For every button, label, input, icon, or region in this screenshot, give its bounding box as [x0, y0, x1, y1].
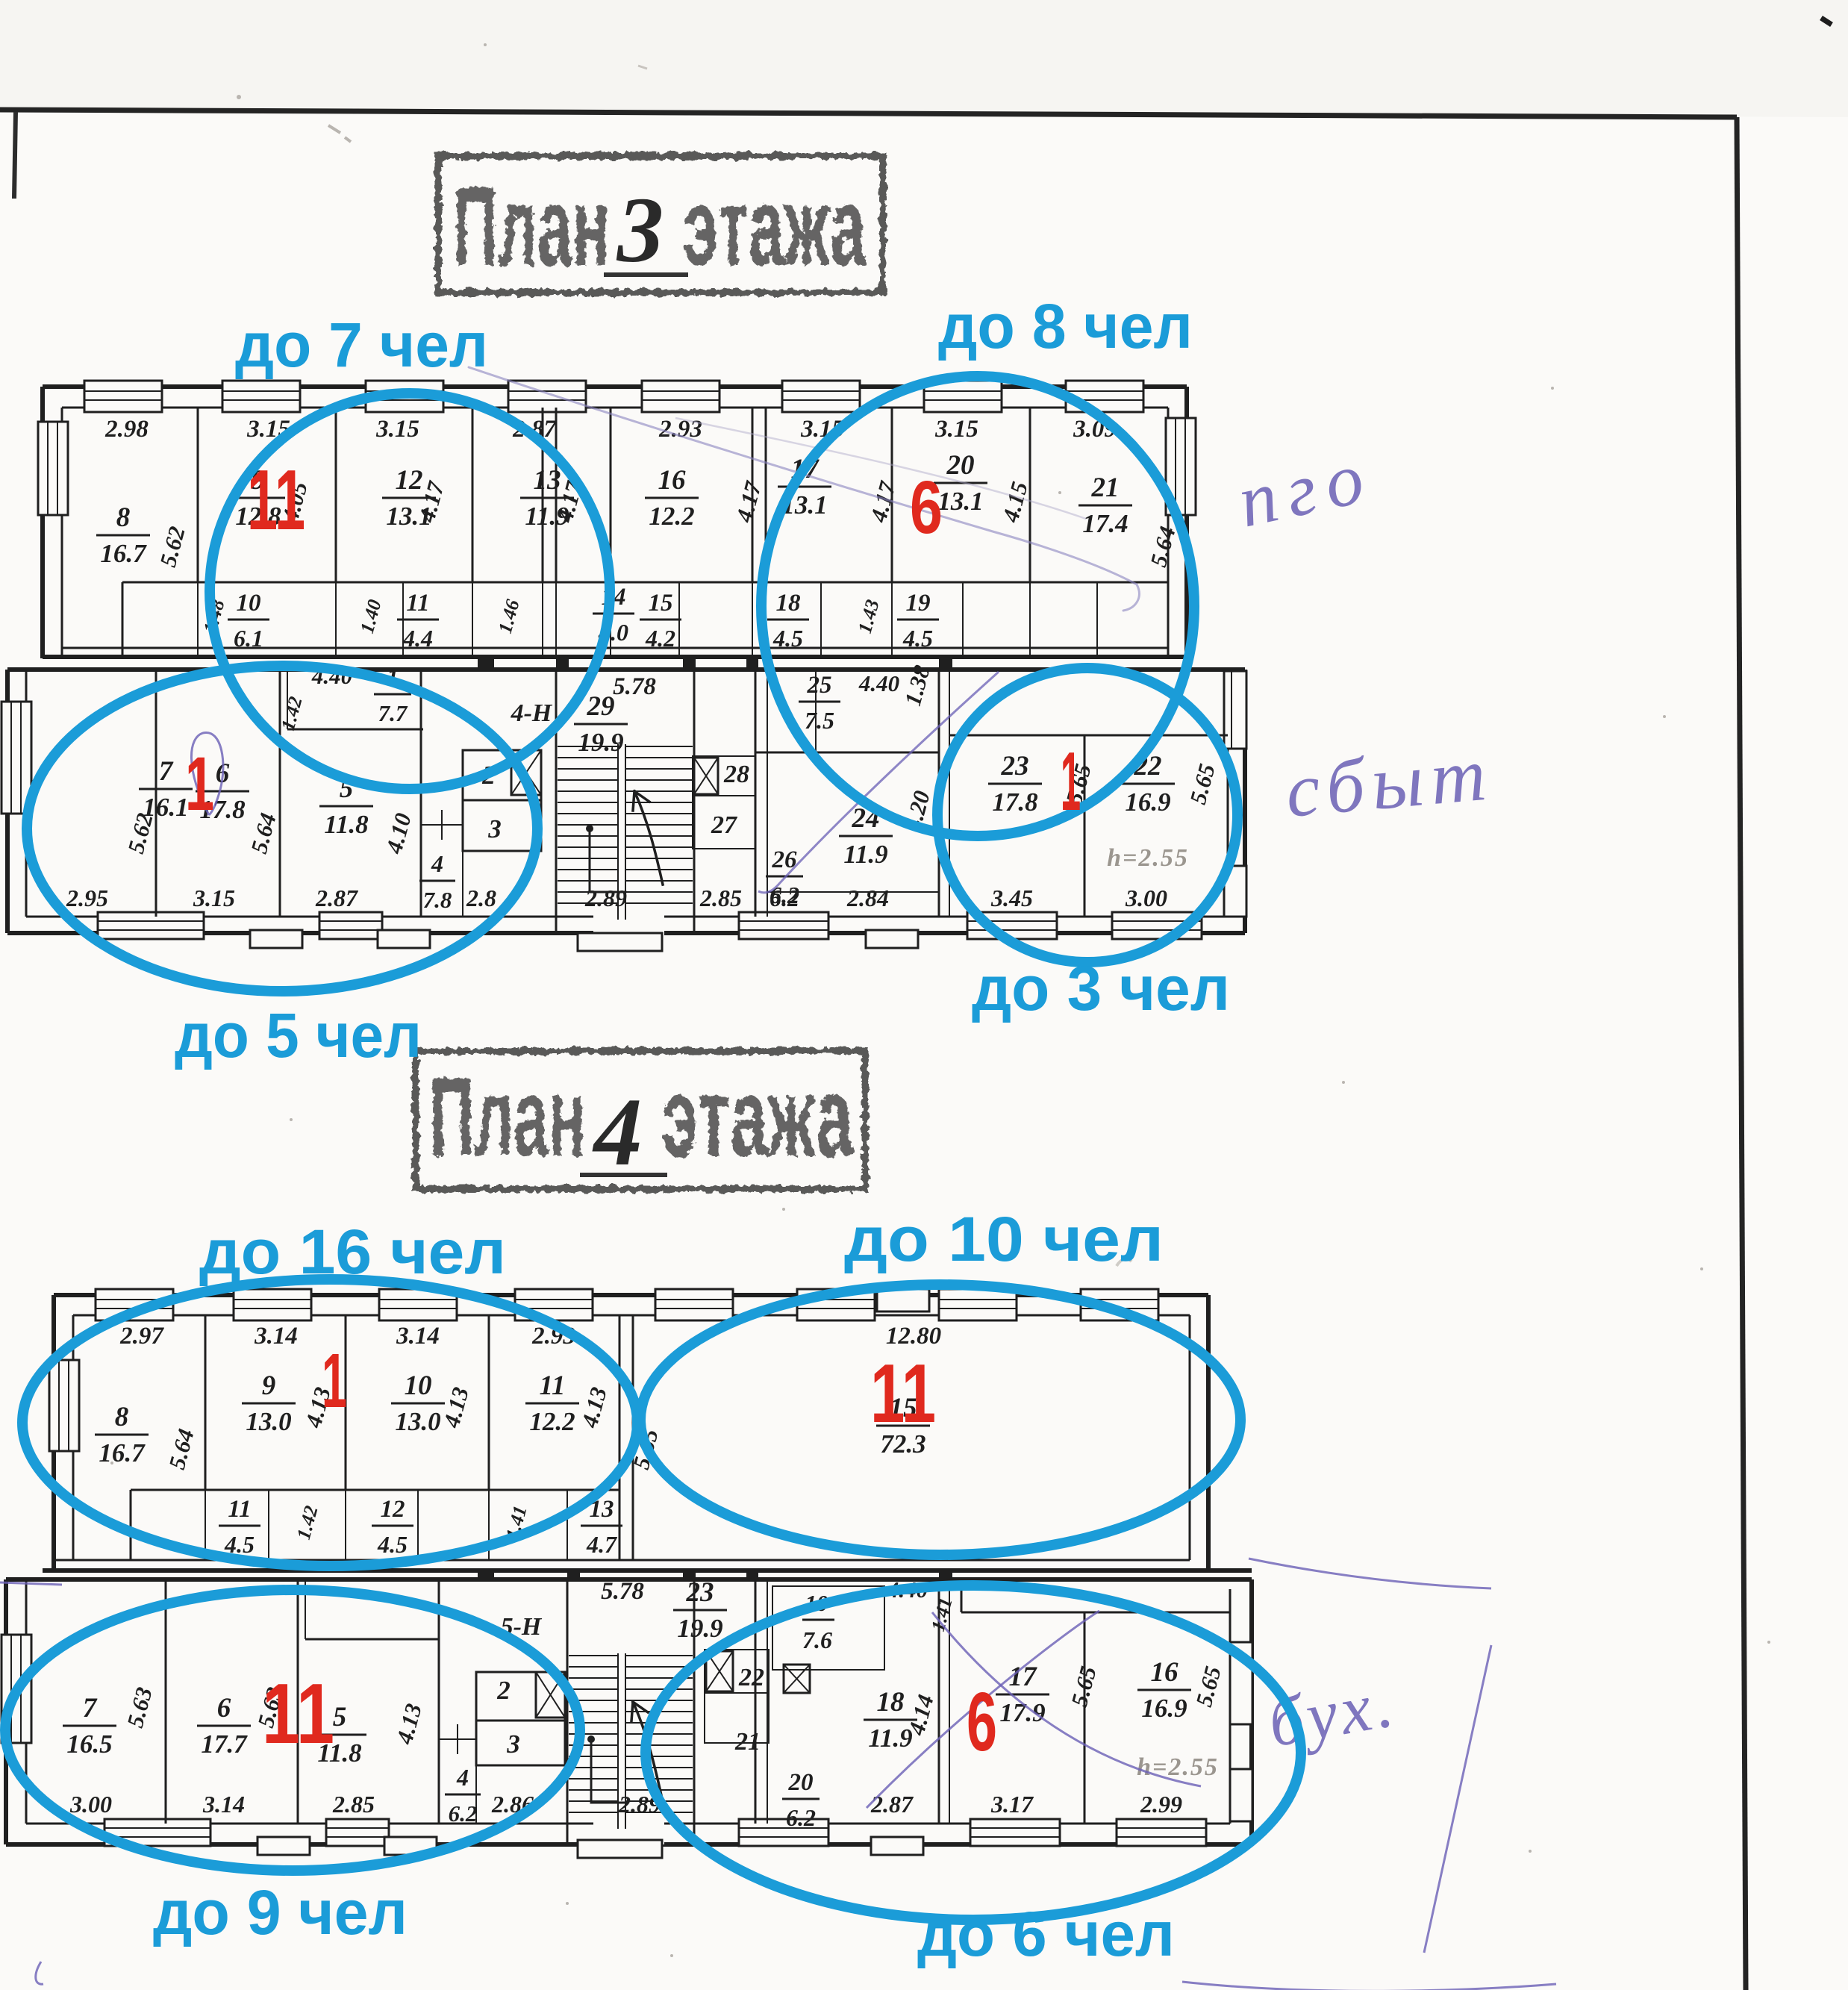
svg-text:6: 6: [967, 1676, 997, 1768]
svg-text:29: 29: [587, 691, 615, 722]
svg-text:11: 11: [406, 590, 429, 617]
svg-text:2.89: 2.89: [584, 885, 627, 911]
svg-text:12.2: 12.2: [529, 1407, 575, 1436]
svg-text:4: 4: [456, 1764, 469, 1791]
svg-text:3.14: 3.14: [396, 1323, 440, 1350]
svg-text:16: 16: [658, 465, 687, 496]
svg-text:до 7 чел: до 7 чел: [235, 310, 488, 380]
svg-text:3.00: 3.00: [69, 1791, 112, 1818]
svg-text:21: 21: [734, 1728, 761, 1756]
svg-text:сбыт: сбыт: [1282, 732, 1496, 834]
svg-text:4: 4: [431, 850, 443, 877]
svg-text:25: 25: [807, 672, 832, 699]
svg-text:5.78: 5.78: [613, 673, 656, 700]
svg-text:План: План: [453, 163, 610, 289]
svg-text:15: 15: [649, 590, 673, 617]
svg-text:2.95: 2.95: [66, 885, 108, 911]
svg-text:до 16 чел: до 16 чел: [199, 1217, 506, 1287]
svg-text:20: 20: [946, 450, 975, 481]
svg-text:16.9: 16.9: [1141, 1694, 1187, 1723]
svg-text:4.5: 4.5: [902, 625, 933, 652]
svg-text:16.7: 16.7: [100, 539, 147, 568]
svg-text:18: 18: [776, 590, 801, 617]
svg-text:8: 8: [115, 1402, 129, 1432]
svg-text:7: 7: [83, 1693, 98, 1724]
svg-text:1: 1: [185, 741, 214, 826]
svg-text:2.8: 2.8: [466, 885, 496, 911]
svg-text:6: 6: [217, 1693, 231, 1724]
svg-text:3.14: 3.14: [202, 1791, 245, 1818]
svg-text:12.80: 12.80: [886, 1323, 941, 1350]
svg-text:План: План: [429, 1054, 586, 1179]
svg-text:7.5: 7.5: [805, 707, 834, 734]
svg-text:11: 11: [228, 1496, 251, 1523]
svg-text:2.98: 2.98: [104, 416, 149, 443]
svg-text:4.40: 4.40: [858, 670, 899, 696]
svg-text:3: 3: [506, 1729, 520, 1759]
svg-text:12.2: 12.2: [649, 502, 694, 531]
svg-text:6.2: 6.2: [770, 882, 799, 908]
svg-text:до 3 чел: до 3 чел: [972, 953, 1230, 1023]
svg-text:2: 2: [496, 1676, 511, 1705]
svg-text:7: 7: [159, 756, 174, 787]
svg-text:5: 5: [333, 1702, 347, 1732]
svg-text:3: 3: [616, 179, 664, 282]
svg-text:3.17: 3.17: [990, 1791, 1034, 1818]
svg-text:28: 28: [723, 761, 749, 788]
svg-text:11: 11: [247, 453, 305, 548]
svg-text:22: 22: [738, 1664, 764, 1691]
svg-text:17.8: 17.8: [992, 787, 1037, 817]
svg-text:3.15: 3.15: [193, 885, 235, 911]
svg-text:17.4: 17.4: [1082, 509, 1128, 538]
svg-text:12: 12: [396, 465, 423, 496]
svg-text:4-H: 4-H: [511, 699, 553, 727]
svg-text:h=2.55: h=2.55: [1107, 844, 1189, 872]
svg-text:4: 4: [592, 1079, 643, 1186]
svg-text:до 6 чел: до 6 чел: [917, 1899, 1175, 1969]
svg-text:7.6: 7.6: [802, 1626, 832, 1653]
svg-text:2.87: 2.87: [315, 885, 359, 911]
svg-text:11: 11: [540, 1370, 566, 1401]
svg-text:6: 6: [910, 466, 943, 549]
svg-text:4.7: 4.7: [586, 1531, 618, 1558]
svg-text:3.14: 3.14: [254, 1323, 298, 1350]
svg-text:этажа: этажа: [683, 163, 867, 289]
svg-text:19.9: 19.9: [578, 728, 623, 757]
svg-text:4.2: 4.2: [645, 625, 675, 652]
svg-text:до 9 чел: до 9 чел: [153, 1877, 408, 1947]
svg-text:17.7: 17.7: [201, 1729, 248, 1759]
svg-text:19: 19: [906, 590, 931, 617]
svg-text:2.97: 2.97: [119, 1323, 164, 1350]
svg-text:2.85: 2.85: [332, 1791, 375, 1818]
svg-text:13.1: 13.1: [937, 487, 983, 516]
svg-text:h=2.55: h=2.55: [1137, 1753, 1219, 1781]
svg-text:3.00: 3.00: [1125, 885, 1167, 911]
svg-text:2.84: 2.84: [846, 885, 889, 911]
svg-text:16.5: 16.5: [66, 1729, 112, 1759]
svg-text:16.7: 16.7: [99, 1438, 146, 1467]
svg-text:5.78: 5.78: [601, 1578, 644, 1605]
svg-text:13.0: 13.0: [246, 1407, 291, 1436]
svg-text:27: 27: [711, 811, 738, 839]
svg-text:6.2: 6.2: [786, 1804, 816, 1831]
svg-text:10: 10: [405, 1370, 432, 1401]
svg-text:19.9: 19.9: [677, 1614, 722, 1643]
svg-text:10: 10: [237, 590, 261, 617]
svg-text:2.99: 2.99: [1140, 1791, 1182, 1818]
svg-text:7.8: 7.8: [423, 887, 452, 913]
svg-text:1: 1: [322, 1338, 347, 1423]
svg-text:4.5: 4.5: [377, 1531, 408, 1558]
svg-text:до 10 чел: до 10 чел: [844, 1204, 1164, 1274]
svg-text:16.9: 16.9: [1125, 787, 1170, 817]
svg-text:11.8: 11.8: [324, 810, 368, 839]
svg-text:до 8 чел: до 8 чел: [938, 291, 1193, 361]
svg-text:4.4: 4.4: [402, 625, 433, 652]
svg-text:3: 3: [487, 814, 502, 843]
svg-text:9: 9: [262, 1370, 276, 1401]
svg-text:2.85: 2.85: [699, 885, 742, 911]
svg-text:6.2: 6.2: [449, 1800, 478, 1827]
svg-text:11: 11: [262, 1667, 334, 1762]
svg-text:8: 8: [116, 502, 131, 533]
svg-text:3.15: 3.15: [375, 416, 419, 443]
svg-text:20: 20: [788, 1769, 814, 1796]
svg-text:18: 18: [877, 1687, 905, 1718]
svg-text:23: 23: [1001, 751, 1029, 782]
svg-text:до 5 чел: до 5 чел: [175, 1000, 422, 1070]
svg-text:13.0: 13.0: [395, 1407, 440, 1436]
svg-text:3.45: 3.45: [990, 885, 1033, 911]
svg-text:12: 12: [381, 1496, 405, 1523]
svg-text:этажа: этажа: [661, 1054, 854, 1179]
svg-text:3.15: 3.15: [934, 416, 978, 443]
svg-text:13: 13: [534, 465, 561, 496]
svg-text:11.9: 11.9: [843, 840, 887, 869]
svg-text:1: 1: [1061, 735, 1081, 828]
svg-text:11: 11: [870, 1347, 936, 1440]
svg-text:7.7: 7.7: [378, 700, 408, 726]
svg-text:16: 16: [1151, 1657, 1179, 1688]
svg-text:6.1: 6.1: [234, 625, 263, 652]
svg-text:23: 23: [686, 1577, 714, 1608]
svg-text:21: 21: [1091, 472, 1120, 503]
svg-text:4.5: 4.5: [772, 625, 803, 652]
svg-text:2.87: 2.87: [870, 1791, 914, 1818]
